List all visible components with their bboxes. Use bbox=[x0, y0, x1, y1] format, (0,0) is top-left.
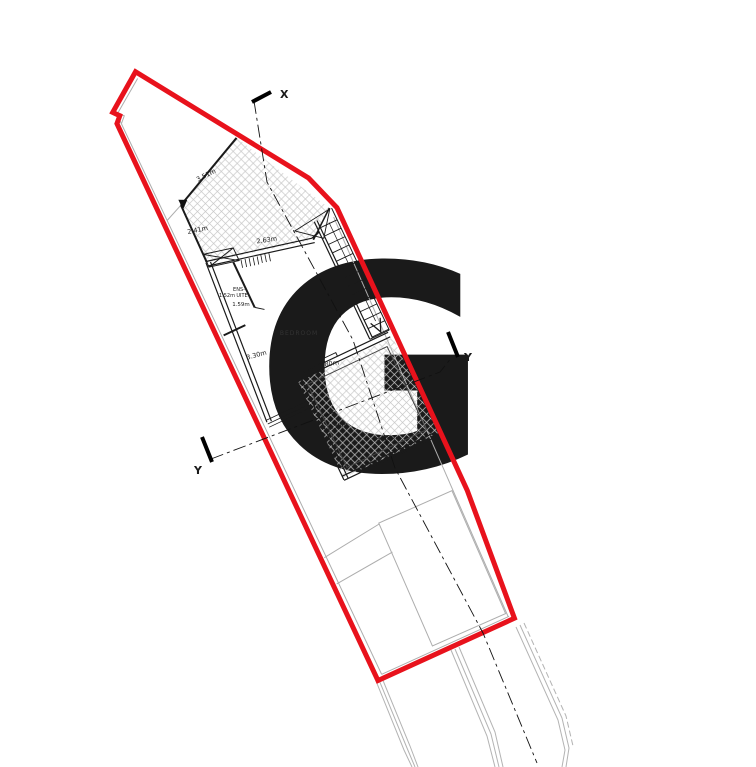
ensuite-bottom-wall bbox=[224, 325, 246, 335]
dimension-label: 1.52m bbox=[219, 293, 235, 299]
section-tick-y-left bbox=[202, 437, 212, 462]
context-wall-right-dashed bbox=[524, 623, 573, 746]
context-wall-right bbox=[516, 625, 569, 767]
section-tick-x bbox=[252, 92, 271, 102]
dimension-label: 1.59m bbox=[232, 302, 250, 308]
inner-offset-bottom bbox=[382, 615, 509, 677]
site-plan-svg: G bbox=[0, 0, 756, 767]
section-label-y-left: Y bbox=[193, 464, 203, 477]
section-label-y-right: Y bbox=[463, 351, 473, 364]
context-walls-below bbox=[376, 623, 573, 767]
room-label-bedroom: BEDROOM bbox=[280, 330, 318, 337]
ensuite-right-wall bbox=[233, 262, 254, 307]
floor-plan-drawing: G bbox=[0, 0, 756, 767]
section-label-x: X bbox=[280, 88, 289, 101]
context-wall-left bbox=[376, 678, 418, 767]
context-wall-middle bbox=[451, 647, 503, 767]
room-label-ensuite-line2: UITE bbox=[236, 293, 247, 299]
